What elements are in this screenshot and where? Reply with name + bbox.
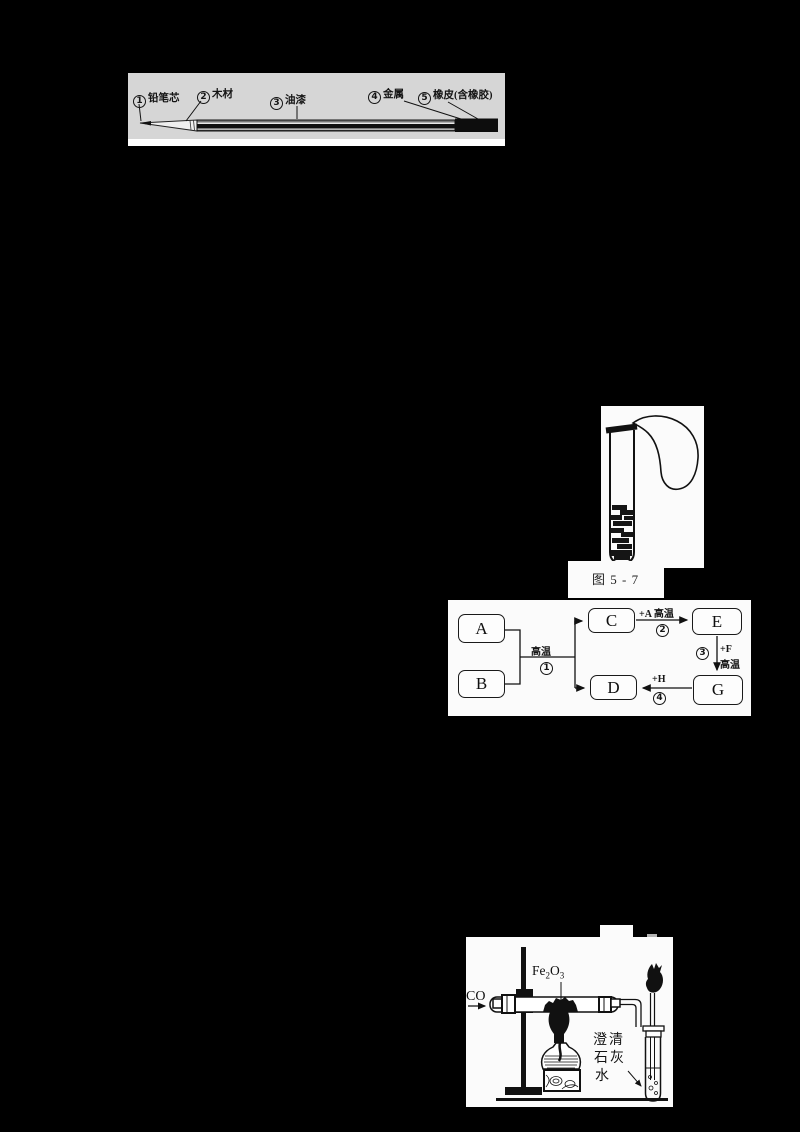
table-line <box>496 1098 668 1101</box>
testtube-balloon-figure <box>601 406 704 568</box>
pencil-drawing <box>128 73 505 146</box>
reaction-flowchart-figure: A B C D E G 高温 1 +A 高温 2 3 +F 高温 +H 4 <box>448 600 751 716</box>
figure-caption-strip: 图 5 - 7 <box>568 561 664 598</box>
scan-white-strip <box>128 139 505 146</box>
step3-condition-label: 高温 <box>720 656 740 671</box>
circled-step-2: 2 <box>656 624 669 637</box>
flow-box-g: G <box>693 675 743 705</box>
apparatus-drawing <box>466 937 673 1107</box>
limewater-label-line3: 水 <box>595 1065 611 1085</box>
pencil-label-eraser: 5橡皮(含橡胶) <box>418 87 493 105</box>
step1-condition-label: 高温 <box>531 643 551 658</box>
limewater-test-tube <box>643 1026 664 1101</box>
step2-label: +A 高温 <box>639 605 674 620</box>
pencil-label-wood: 2木材 <box>197 86 233 104</box>
step4-label: +H <box>652 674 665 685</box>
merge-line-a-b <box>505 630 520 684</box>
circled-number-icon: 2 <box>197 91 210 104</box>
pencil-label-metal: 4金属 <box>368 86 404 104</box>
solid-contents <box>611 505 633 560</box>
co-gas-label: CO <box>466 989 485 1005</box>
limewater-label-line2: 石灰 <box>594 1047 626 1067</box>
co-fe2o3-apparatus-figure: CO Fe2O3 澄清 石灰 水 <box>466 937 673 1107</box>
circled-step-3: 3 <box>696 647 709 660</box>
flow-box-d: D <box>590 675 637 700</box>
fe2o3-formula-label: Fe2O3 <box>532 963 564 981</box>
circled-number-icon: 3 <box>270 97 283 110</box>
scanned-worksheet-page: { "colors": { "page_bg": "#000000", "pen… <box>0 0 800 1132</box>
limewater-label-line1: 澄清 <box>593 1029 625 1049</box>
tail-gas-flame <box>646 963 663 1026</box>
flow-box-b: B <box>458 670 505 698</box>
step3-reagent-label: +F <box>720 644 732 655</box>
balloon <box>633 416 698 489</box>
circled-step-1: 1 <box>540 662 553 675</box>
powder-and-flame <box>543 997 578 1043</box>
gas-outlet-tube <box>620 1000 641 1028</box>
flow-box-a: A <box>458 614 505 643</box>
scan-edge-fragment <box>600 925 633 937</box>
testtube-balloon-drawing <box>601 406 704 568</box>
iron-stand <box>496 947 668 1101</box>
pencil-structure-figure: 1铅笔芯 2木材 3油漆 4金属 5橡皮(含橡胶) <box>128 73 505 146</box>
limewater-pointer-arrow <box>628 1071 641 1086</box>
circled-number-icon: 1 <box>133 95 146 108</box>
flow-box-c: C <box>588 608 635 633</box>
figure-caption: 图 5 - 7 <box>592 569 639 588</box>
alcohol-lamp <box>542 1043 581 1069</box>
circled-number-icon: 5 <box>418 92 431 105</box>
pencil-label-lead: 1铅笔芯 <box>133 90 180 108</box>
flow-box-e: E <box>692 608 742 635</box>
pencil-label-paint: 3油漆 <box>270 92 306 110</box>
pencil-eraser-end <box>455 119 498 133</box>
wood-block <box>544 1070 580 1091</box>
circled-number-icon: 4 <box>368 91 381 104</box>
pencil-body <box>140 119 498 133</box>
circled-step-4: 4 <box>653 692 666 705</box>
